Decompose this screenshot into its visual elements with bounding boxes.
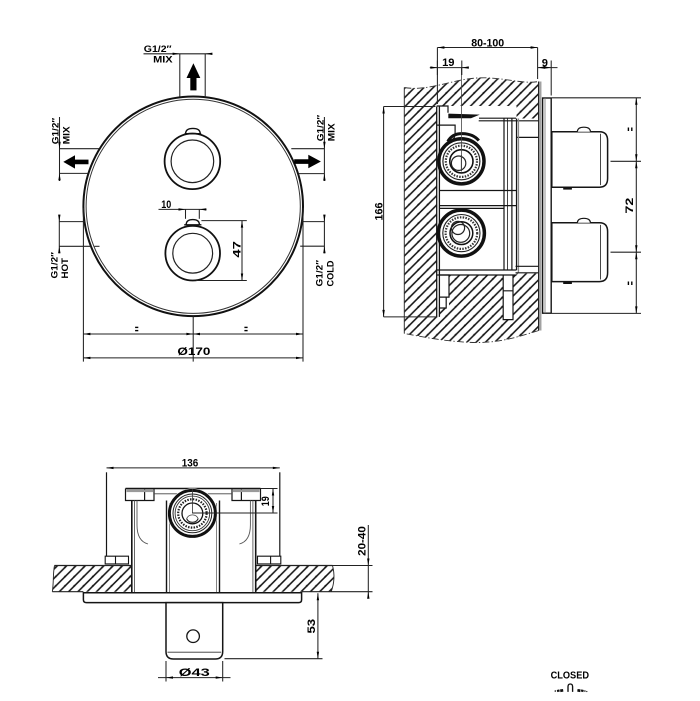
svg-text:80-100: 80-100	[471, 38, 504, 50]
svg-text:10: 10	[161, 199, 171, 211]
svg-text:G1/2″: G1/2″	[315, 114, 326, 141]
svg-text:MIX: MIX	[153, 53, 173, 64]
svg-text:G1/2″: G1/2″	[144, 43, 172, 54]
svg-text:20-40: 20-40	[356, 526, 368, 556]
svg-text:Ø43: Ø43	[179, 667, 210, 679]
svg-text:19: 19	[442, 57, 454, 69]
svg-text:136: 136	[182, 457, 199, 469]
svg-text:53: 53	[306, 619, 318, 634]
svg-text:Ø170: Ø170	[177, 346, 210, 358]
svg-text:HOT: HOT	[59, 258, 70, 279]
svg-text:72: 72	[624, 198, 636, 214]
svg-text:G1/2″: G1/2″	[50, 117, 61, 144]
svg-text:166: 166	[374, 203, 386, 221]
svg-text:G1/2″: G1/2″	[48, 251, 59, 278]
svg-text:G1/2″: G1/2″	[314, 259, 325, 286]
svg-text:19: 19	[260, 496, 272, 506]
svg-text:47: 47	[231, 241, 243, 258]
svg-text:COLD: COLD	[325, 260, 336, 286]
svg-text:9: 9	[542, 57, 548, 69]
svg-text:MIX: MIX	[60, 125, 71, 144]
svg-text:CLOSED: CLOSED	[551, 671, 589, 682]
svg-text:MIX: MIX	[325, 122, 336, 141]
